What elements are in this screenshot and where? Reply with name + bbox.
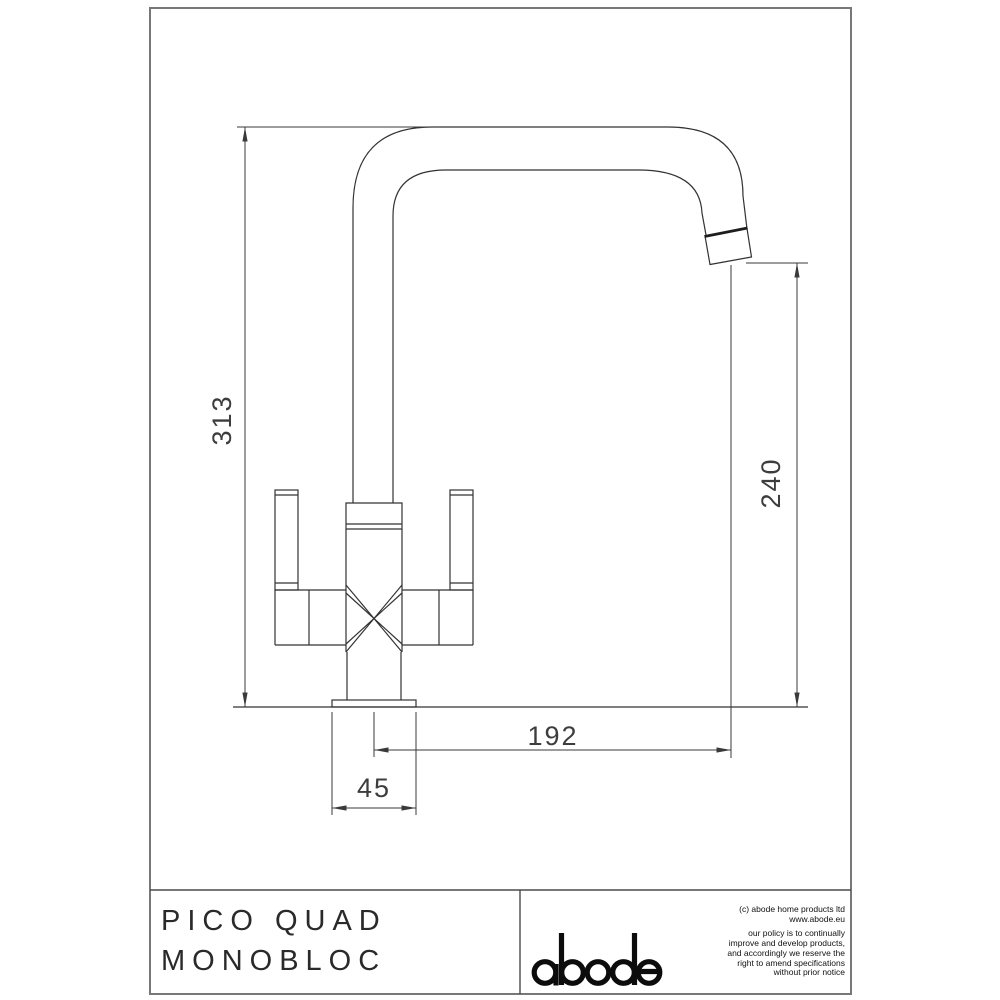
handle-right-lever: [450, 490, 473, 590]
company-legal-text: (c) abode home products ltd www.abode.eu…: [727, 905, 845, 978]
dimension-label-45: 45: [357, 773, 391, 803]
logo-letter-d-bowl: [613, 962, 635, 984]
drawing-sheet: 313 240 192 45 abode: [0, 0, 1000, 1000]
handle-left: [275, 490, 346, 645]
dimension-overall-height: 313: [207, 127, 440, 707]
abode-logo: abode: [534, 933, 660, 986]
policy-line-5: without prior notice: [727, 968, 845, 978]
policy-text: our policy is to continually improve and…: [727, 929, 845, 978]
dimension-label-192: 192: [527, 721, 578, 751]
faucet-body: [332, 503, 416, 707]
cross-valve-pattern: [346, 585, 402, 652]
dimension-label-313: 313: [207, 394, 237, 445]
dimension-spout-height: 240: [746, 263, 808, 707]
dimension-label-240: 240: [756, 457, 786, 508]
handle-left-lever: [275, 490, 298, 590]
handle-right: [402, 490, 473, 645]
body-collar: [346, 503, 402, 529]
logo-letter-o-bowl: [587, 962, 609, 984]
product-title: PICO QUAD MONOBLOC: [161, 901, 387, 981]
product-title-line2: MONOBLOC: [161, 941, 387, 981]
aerator-joint-line: [705, 228, 748, 237]
website-text: www.abode.eu: [727, 915, 845, 925]
product-title-line1: PICO QUAD: [161, 901, 387, 941]
dimension-spout-reach: 192: [374, 265, 731, 758]
base-flange: [332, 700, 416, 707]
faucet-technical-drawing: 313 240 192 45 abode: [0, 0, 1000, 1000]
faucet-spout: [353, 127, 752, 503]
sheet-border: [150, 8, 851, 994]
spout-inner-edge: [393, 170, 706, 503]
logo-letter-b-bowl: [562, 962, 584, 984]
logo-letter-a-bowl: [534, 962, 556, 984]
